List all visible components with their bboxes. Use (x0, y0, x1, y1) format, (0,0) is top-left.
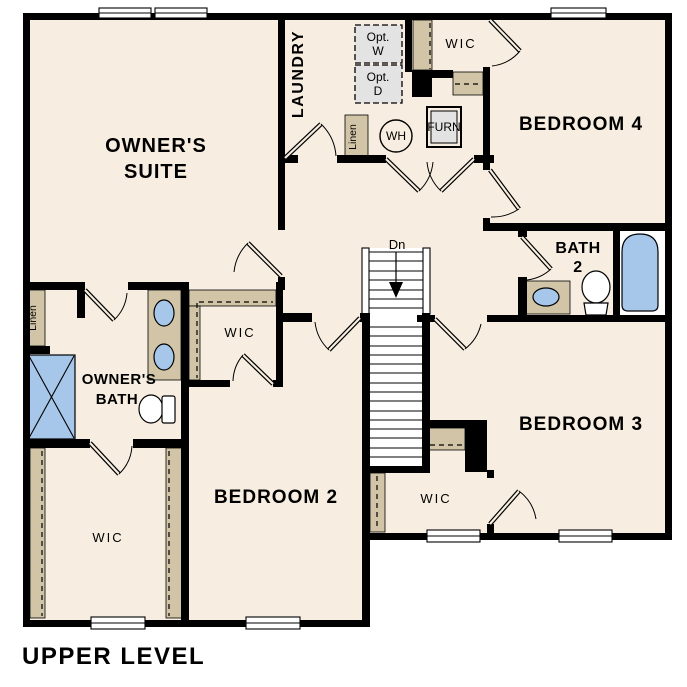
stair-rail-left (362, 248, 369, 314)
floor-lower-body (30, 533, 362, 620)
floor-plan: OWNER'S SUITE LAUNDRY Opt. W Opt. D WIC … (0, 0, 687, 687)
bedroom3-label: BEDROOM 3 (519, 414, 643, 435)
window (246, 617, 300, 629)
bedroom3-wic-shelf-top (428, 428, 465, 450)
owners-sink-2 (154, 344, 174, 370)
window (155, 8, 207, 18)
owners-suite-label: OWNER'S (105, 135, 207, 157)
bath2-sink (533, 288, 559, 306)
bedroom4-wic-shelf (413, 20, 432, 70)
stair-rail-right (423, 248, 430, 314)
window (91, 617, 145, 629)
bath2-label: BATH (555, 240, 600, 257)
hall-linen-label: Linen (27, 305, 39, 331)
opt-dryer-label: D (374, 84, 383, 98)
owners-toilet-bowl (139, 395, 163, 423)
bath2-toilet-tank (584, 303, 608, 315)
window (427, 530, 480, 542)
bath2-tub (622, 234, 658, 311)
owners-toilet-tank (162, 396, 175, 423)
bedroom2-wic-label: WIC (224, 325, 255, 340)
opt-washer-label: Opt. (367, 30, 390, 44)
bedroom2-label: BEDROOM 2 (214, 487, 338, 508)
bedroom4-label: BEDROOM 4 (519, 114, 643, 135)
stairs-down-label: Dn (389, 237, 406, 252)
bedroom3-wic-label: WIC (420, 491, 451, 506)
window (99, 8, 151, 18)
furnace-label: FURN (427, 120, 460, 134)
owners-bath-label: OWNER'S (82, 371, 157, 388)
plan-caption: UPPER LEVEL (22, 643, 205, 670)
bedroom4-wic-label: WIC (445, 36, 476, 51)
opt-dryer-label: Opt. (367, 70, 390, 84)
opt-washer-label: W (372, 44, 384, 58)
owners-bath-label: BATH (96, 391, 139, 408)
bath2-label: 2 (573, 259, 582, 276)
bedroom2-wic-shelf-left (189, 306, 200, 380)
owners-sink-1 (154, 300, 174, 326)
laundry-label: LAUNDRY (290, 30, 307, 118)
bath2-toilet-bowl (582, 271, 610, 303)
owners-suite-label: SUITE (124, 161, 188, 183)
window (551, 8, 606, 18)
laundry-linen-label: Linen (347, 124, 359, 150)
window (559, 530, 612, 542)
water-heater-label: WH (386, 129, 406, 143)
owners-wic-label: WIC (92, 530, 123, 545)
owners-wic-shelf-left (30, 448, 45, 618)
floor-upper-body (30, 20, 665, 533)
staircase (362, 248, 430, 467)
bedroom2-wic-shelf-top (189, 290, 276, 306)
